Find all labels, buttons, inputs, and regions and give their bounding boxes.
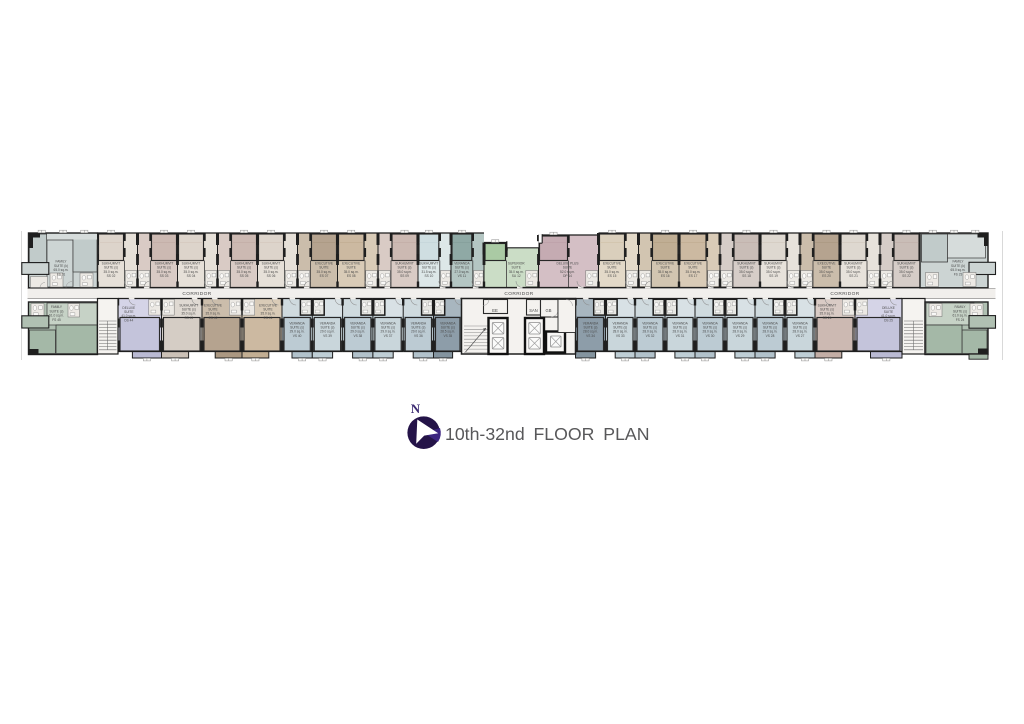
svg-text:10th-32nd FLOOR PLAN: 10th-32nd FLOOR PLAN	[445, 424, 650, 444]
svg-text:ES 17: ES 17	[689, 274, 698, 278]
svg-text:SS 03: SS 03	[160, 274, 169, 278]
svg-text:VS 37: VS 37	[384, 334, 393, 338]
svg-text:ES 42: ES 42	[209, 316, 218, 320]
svg-text:ES 08: ES 08	[347, 274, 356, 278]
svg-text:VS 32: VS 32	[646, 334, 655, 338]
svg-text:ES 20: ES 20	[822, 274, 831, 278]
svg-text:VS 29: VS 29	[736, 334, 745, 338]
svg-text:VS 30: VS 30	[706, 334, 715, 338]
svg-text:SAN: SAN	[529, 308, 537, 313]
svg-text:SS 02: SS 02	[107, 274, 116, 278]
svg-text:DS 25: DS 25	[884, 318, 893, 322]
svg-text:VS 27: VS 27	[796, 334, 805, 338]
svg-text:SS 22: SS 22	[902, 274, 911, 278]
svg-text:VS 35: VS 35	[443, 334, 452, 338]
svg-text:ES 15: ES 15	[608, 274, 617, 278]
svg-text:N: N	[411, 401, 421, 416]
svg-text:EE: EE	[492, 308, 498, 313]
svg-text:ES 07: ES 07	[320, 274, 329, 278]
svg-text:VS 36: VS 36	[414, 334, 423, 338]
svg-text:VS 39: VS 39	[323, 334, 332, 338]
svg-text:SS 21: SS 21	[849, 274, 858, 278]
svg-text:SS 26: SS 26	[823, 316, 832, 320]
svg-text:SS 10: SS 10	[425, 274, 434, 278]
svg-text:VS 11: VS 11	[458, 274, 467, 278]
svg-text:SS 19: SS 19	[769, 274, 778, 278]
svg-text:VS 33: VS 33	[616, 334, 625, 338]
svg-text:SS 04: SS 04	[187, 274, 196, 278]
svg-text:SS 06: SS 06	[267, 274, 276, 278]
svg-text:VS 31: VS 31	[676, 334, 685, 338]
svg-text:ES 41: ES 41	[264, 316, 273, 320]
svg-text:DS 44: DS 44	[124, 318, 133, 322]
svg-text:SS 18: SS 18	[742, 274, 751, 278]
svg-text:CORRIDOR: CORRIDOR	[830, 291, 859, 297]
svg-text:VS 28: VS 28	[766, 334, 775, 338]
svg-text:DP 14: DP 14	[563, 274, 572, 278]
svg-text:VS 40: VS 40	[293, 334, 302, 338]
svg-text:FS 24: FS 24	[956, 318, 965, 322]
svg-text:FS 23: FS 23	[954, 272, 963, 276]
svg-text:SS 05: SS 05	[240, 274, 249, 278]
svg-text:VS 34: VS 34	[586, 334, 595, 338]
svg-text:ES 16: ES 16	[661, 274, 670, 278]
svg-text:FS 45: FS 45	[52, 318, 61, 322]
svg-text:VS 38: VS 38	[353, 334, 362, 338]
svg-text:SS 09: SS 09	[400, 274, 409, 278]
svg-text:CORRIDOR: CORRIDOR	[182, 291, 211, 297]
svg-text:CORRIDOR: CORRIDOR	[504, 291, 533, 297]
svg-text:SU 12: SU 12	[512, 274, 521, 278]
svg-text:FS 01: FS 01	[57, 272, 66, 276]
svg-text:GB: GB	[546, 308, 552, 313]
svg-text:SS 43: SS 43	[184, 316, 193, 320]
